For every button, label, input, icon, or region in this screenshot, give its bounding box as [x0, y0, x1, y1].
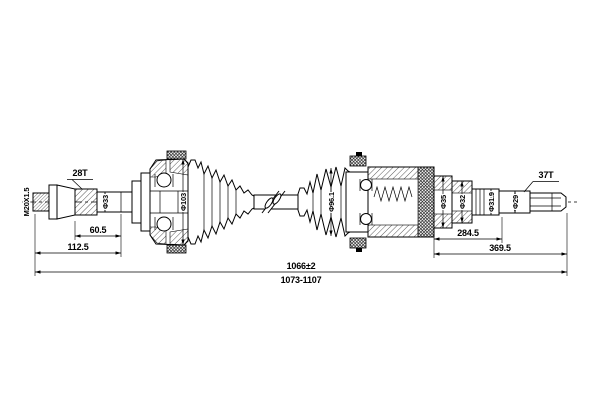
left-spline-label: 28T — [73, 168, 89, 178]
dim-overall-length: 1066±2 1073-1107 — [35, 261, 567, 285]
right-output-shaft — [434, 176, 566, 228]
dim-right-shaft-length: 284.5 — [434, 228, 502, 239]
dia-ring-groove-label: Φ31.9 — [487, 192, 496, 212]
dim-left-spline-length-label: 60.5 — [90, 225, 107, 235]
dia-spline-seat-label: Φ35 — [439, 195, 448, 209]
dia-shaft-end-label: Φ29 — [511, 195, 520, 209]
dim-left-stub-length: 112.5 — [35, 242, 121, 253]
dia-shaft-label: Φ33 — [101, 195, 110, 209]
dim-overall-length-label: 1066±2 — [287, 261, 316, 271]
left-spline-section — [75, 189, 97, 215]
outer-boot — [188, 160, 254, 244]
dim-right-stub-length: 369.5 — [434, 243, 567, 254]
dia-ring-groove: Φ31.9 — [487, 189, 496, 215]
inner-boot — [298, 167, 350, 237]
right-spline-stub — [530, 193, 566, 211]
boot-clamp-band-bottom — [167, 245, 186, 253]
dim-length-range-label: 1073-1107 — [281, 275, 322, 285]
left-spline-callout: 28T — [67, 168, 93, 189]
boot-clamp-band-top — [167, 151, 186, 159]
tripod-roller-top — [360, 179, 372, 191]
dim-left-spline-length: 60.5 — [75, 225, 121, 236]
right-spline-label: 37T — [539, 170, 555, 180]
dia-outer-joint-label: Φ103 — [179, 193, 188, 211]
right-spline-callout: 37T — [524, 170, 559, 192]
thread-label: M20X1.5 — [22, 188, 31, 217]
drawing-svg: M20X1.5 28T 37T Φ33 Φ103 Φ96.1 Φ35 Φ32 Φ… — [0, 0, 600, 400]
driveshaft-technical-drawing: M20X1.5 28T 37T Φ33 Φ103 Φ96.1 Φ35 Φ32 Φ… — [0, 0, 600, 400]
threaded-end — [33, 193, 49, 211]
tripod-roller-bottom — [360, 213, 372, 225]
dia-inner-boot-label: Φ96.1 — [327, 192, 336, 212]
stub-flange — [49, 185, 75, 219]
dim-right-stub-length-label: 369.5 — [489, 243, 511, 253]
dim-right-shaft-length-label: 284.5 — [457, 228, 479, 238]
inner-clamp-top — [350, 152, 366, 166]
inner-clamp-bottom — [350, 238, 366, 252]
intermediate-shaft — [254, 191, 300, 213]
dim-left-stub-length-label: 112.5 — [67, 242, 88, 252]
inner-cv-joint — [346, 152, 434, 252]
dia-bearing-seat-label: Φ32 — [458, 195, 467, 209]
